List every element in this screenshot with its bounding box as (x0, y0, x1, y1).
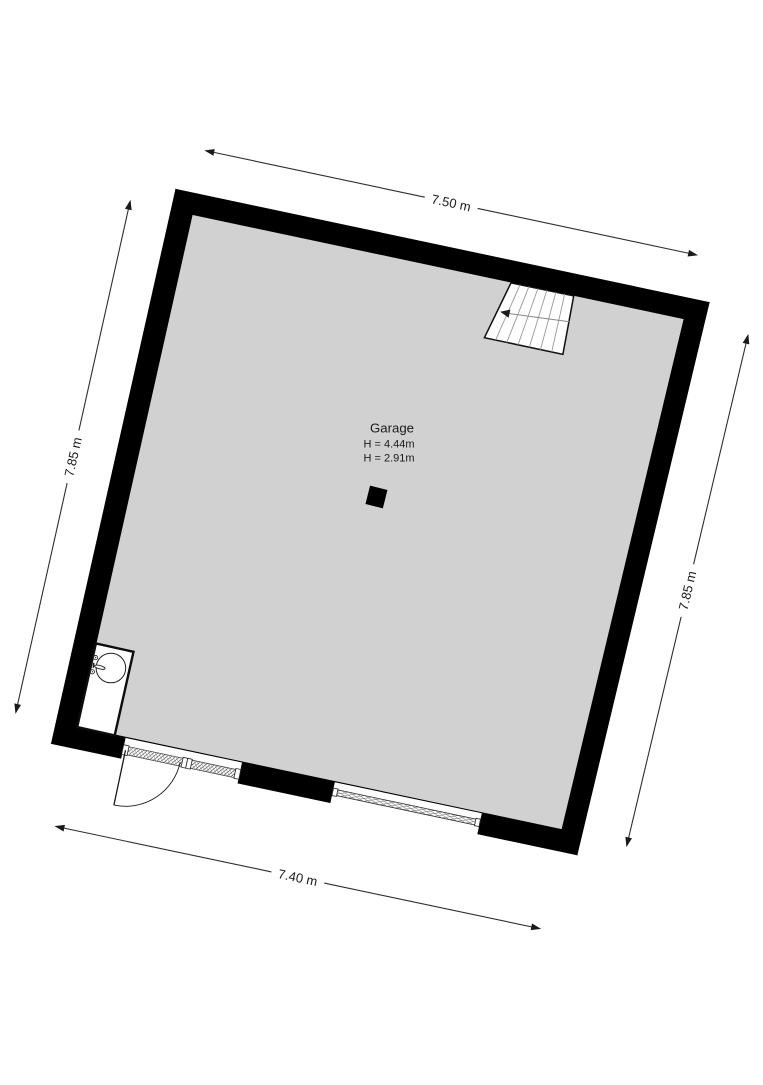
svg-text:Garage: Garage (370, 421, 414, 436)
svg-text:H = 2.91m: H = 2.91m (363, 453, 414, 465)
svg-text:H = 4.44m: H = 4.44m (363, 438, 414, 450)
